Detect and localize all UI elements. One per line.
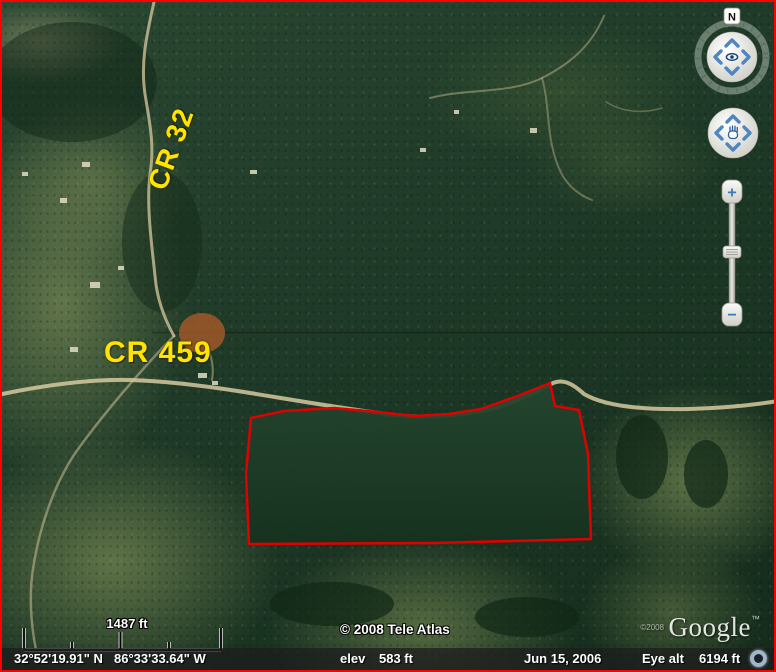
google-logo: Google [669, 612, 751, 642]
tele-atlas-copyright: © 2008 Tele Atlas [340, 622, 450, 637]
zoom-in-icon: + [727, 185, 736, 202]
eye-altitude-label: Eye alt [642, 651, 684, 666]
road-branch [31, 336, 174, 650]
tree-clumps [2, 22, 728, 637]
parcel-outline[interactable] [246, 383, 591, 544]
section-line [152, 332, 776, 333]
eye-icon[interactable] [726, 54, 737, 61]
longitude-readout: 86°33'33.64" W [114, 651, 206, 666]
elevation-value: 583 ft [379, 651, 413, 666]
streaming-indicator-icon [750, 650, 767, 667]
google-earth-viewport: CR 32 CR 459 1487 ft © 2008 Tele Atlas ©… [0, 0, 776, 672]
look-joystick[interactable]: N [698, 8, 766, 91]
zoom-out-icon: − [727, 307, 736, 324]
buildings [22, 110, 537, 385]
google-copyright-year: ©2008 [640, 623, 664, 632]
road-label-cr459: CR 459 [104, 336, 212, 370]
eye-altitude-value: 6194 ft [699, 651, 740, 666]
nav-controls: N + [686, 4, 776, 334]
move-joystick[interactable] [708, 108, 758, 158]
zoom-slider[interactable]: + − [722, 180, 742, 326]
google-watermark: ©2008 Google™ [640, 612, 760, 643]
north-label: N [728, 12, 736, 24]
latitude-readout: 32°52'19.91" N [14, 651, 103, 666]
zoom-in-button[interactable]: + [722, 180, 742, 203]
status-bar: 32°52'19.91" N 86°33'33.64" W elev 583 f… [2, 648, 774, 670]
elevation-label: elev [340, 651, 365, 666]
north-badge[interactable]: N [724, 8, 740, 24]
trademark-symbol: ™ [751, 614, 760, 624]
imagery-date: Jun 15, 2006 [524, 651, 601, 666]
zoom-out-button[interactable]: − [722, 303, 742, 326]
zoom-slider-handle[interactable] [723, 246, 741, 258]
